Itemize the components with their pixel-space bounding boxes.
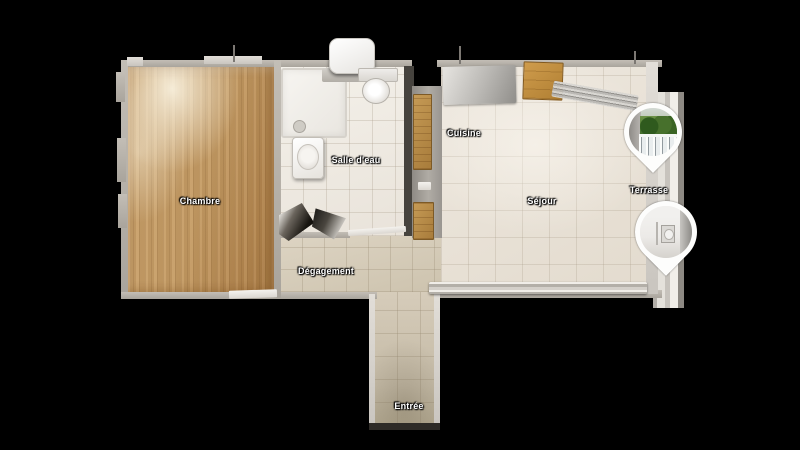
radiator bbox=[429, 282, 647, 294]
wall-chambre-bath bbox=[274, 60, 281, 298]
wall-entree-right bbox=[434, 294, 440, 428]
pano-marker-interior-photo bbox=[640, 206, 692, 258]
label-chambre: Chambre bbox=[180, 196, 220, 206]
terrace-photo-railing bbox=[639, 134, 677, 156]
washbasin-bowl bbox=[297, 144, 319, 170]
shower-drain bbox=[293, 120, 306, 133]
label-entree: Entrée bbox=[394, 401, 423, 411]
wall-stub-left-3 bbox=[118, 194, 127, 228]
wall-stub-topleft bbox=[127, 57, 143, 66]
interior-photo-edge bbox=[656, 222, 658, 245]
washbasin bbox=[292, 137, 324, 179]
label-sejour: Séjour bbox=[527, 196, 556, 206]
scan-artifact-3 bbox=[459, 46, 461, 64]
scan-artifact-1 bbox=[233, 45, 235, 62]
kitchen-woodboard-bottom bbox=[413, 202, 434, 240]
room-chambre-floor[interactable] bbox=[127, 66, 277, 294]
door-entree bbox=[369, 423, 440, 430]
interior-photo-wall bbox=[680, 206, 692, 258]
label-salle-deau: Salle d'eau bbox=[332, 155, 381, 165]
label-degagement: Dégagement bbox=[298, 266, 354, 276]
interior-photo-appliance bbox=[661, 225, 675, 244]
label-cuisine: Cuisine bbox=[447, 128, 481, 138]
kitchen-woodboard-top bbox=[413, 94, 432, 170]
wall-stub-left-1 bbox=[116, 72, 125, 102]
door-chambre bbox=[229, 289, 277, 299]
wall-stub-left-2 bbox=[117, 138, 126, 182]
floorplan-viewer: Chambre Salle d'eau Cuisine Séjour Dégag… bbox=[0, 0, 800, 450]
grey-worktop bbox=[443, 65, 517, 105]
toilet-bowl bbox=[362, 78, 390, 104]
kitchen-chip bbox=[418, 182, 431, 190]
room-degagement-floor[interactable] bbox=[280, 236, 441, 292]
interior-photo-appliance-door bbox=[664, 229, 674, 240]
terrace-photo-trees bbox=[640, 116, 677, 135]
pano-marker-terrace-photo bbox=[629, 108, 677, 156]
scan-artifact-4 bbox=[634, 51, 636, 64]
label-terrasse: Terrasse bbox=[630, 185, 668, 195]
wall-entree-left bbox=[369, 294, 375, 428]
